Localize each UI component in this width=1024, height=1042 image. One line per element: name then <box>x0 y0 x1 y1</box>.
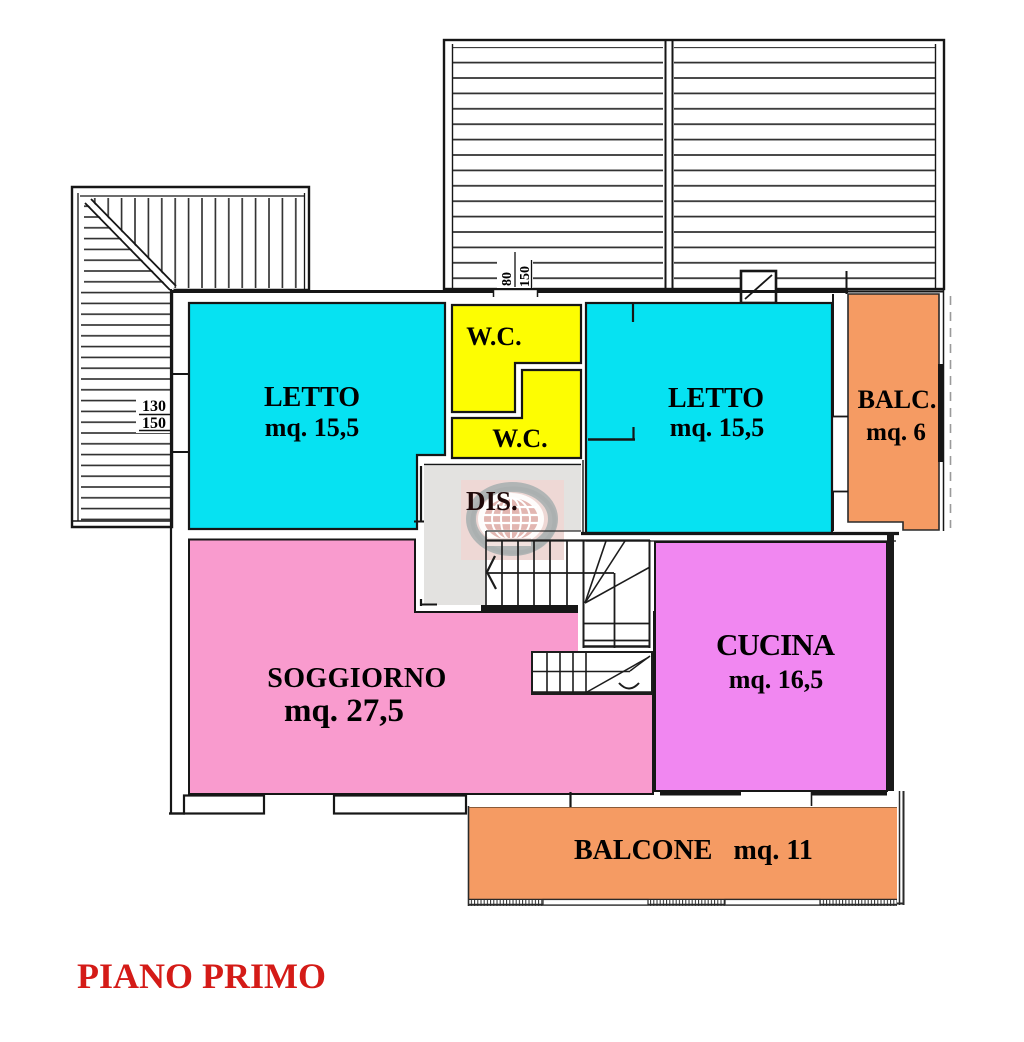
svg-text:PIANO PRIMO: PIANO PRIMO <box>77 956 326 996</box>
svg-text:150: 150 <box>518 266 533 287</box>
svg-text:CUCINA: CUCINA <box>716 627 836 662</box>
svg-text:150: 150 <box>142 415 166 432</box>
svg-text:W.C.: W.C. <box>466 322 521 351</box>
svg-text:LETTO: LETTO <box>264 382 360 413</box>
svg-text:SOGGIORNO: SOGGIORNO <box>267 663 446 694</box>
svg-text:BALCONE mq. 11: BALCONE mq. 11 <box>574 835 813 866</box>
svg-text:mq. 16,5: mq. 16,5 <box>729 665 824 694</box>
svg-text:80: 80 <box>500 272 515 286</box>
svg-text:mq. 27,5: mq. 27,5 <box>284 693 404 729</box>
svg-text:mq. 15,5: mq. 15,5 <box>265 413 360 442</box>
svg-text:W.C.: W.C. <box>492 424 547 453</box>
svg-text:LETTO: LETTO <box>668 383 764 414</box>
svg-text:BALC.: BALC. <box>858 385 937 414</box>
svg-text:mq. 6: mq. 6 <box>866 419 926 446</box>
svg-text:DIS.: DIS. <box>466 486 518 516</box>
svg-text:130: 130 <box>142 398 166 415</box>
svg-text:mq. 15,5: mq. 15,5 <box>670 413 765 442</box>
